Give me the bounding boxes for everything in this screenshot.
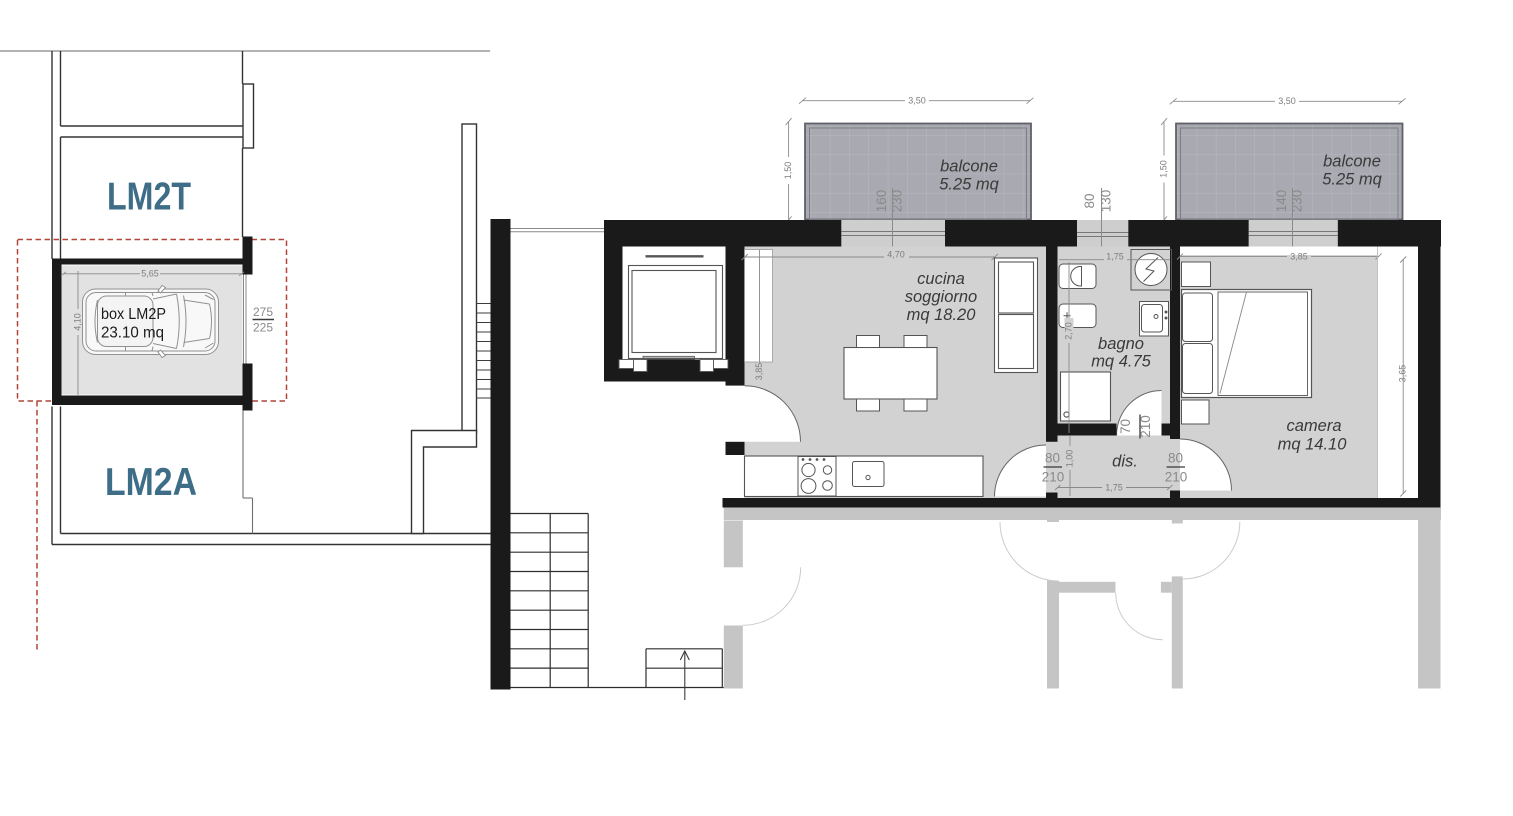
- svg-text:1,75: 1,75: [1105, 483, 1123, 493]
- svg-text:3,50: 3,50: [1278, 96, 1296, 106]
- svg-text:275: 275: [253, 305, 273, 319]
- svg-text:box LM2P: box LM2P: [101, 306, 166, 323]
- svg-text:5.25 mq: 5.25 mq: [1322, 171, 1382, 189]
- svg-text:dis.: dis.: [1112, 453, 1138, 471]
- svg-text:mq 18.20: mq 18.20: [907, 306, 977, 324]
- svg-text:balcone: balcone: [940, 158, 998, 176]
- svg-text:3,85: 3,85: [1290, 252, 1308, 262]
- svg-text:3,50: 3,50: [908, 96, 926, 106]
- svg-text:5,65: 5,65: [141, 269, 159, 279]
- svg-text:70: 70: [1118, 419, 1133, 434]
- svg-text:camera: camera: [1286, 417, 1341, 435]
- svg-text:2,70: 2,70: [1064, 322, 1074, 340]
- svg-text:3,85: 3,85: [754, 363, 764, 381]
- svg-text:80: 80: [1082, 193, 1097, 208]
- svg-text:160: 160: [874, 190, 889, 213]
- svg-text:225: 225: [253, 321, 273, 335]
- svg-text:bagno: bagno: [1098, 335, 1144, 353]
- svg-text:140: 140: [1274, 190, 1289, 213]
- svg-text:230: 230: [1290, 190, 1305, 213]
- svg-text:soggiorno: soggiorno: [905, 288, 977, 306]
- svg-text:mq 4.75: mq 4.75: [1091, 353, 1151, 371]
- svg-text:balcone: balcone: [1323, 153, 1381, 171]
- svg-text:3,65: 3,65: [1398, 365, 1408, 383]
- svg-text:4,70: 4,70: [887, 250, 905, 260]
- svg-text:5.25 mq: 5.25 mq: [939, 176, 999, 194]
- svg-text:80: 80: [1045, 451, 1060, 466]
- svg-text:130: 130: [1099, 190, 1114, 213]
- svg-text:4,10: 4,10: [73, 313, 83, 331]
- svg-text:cucina: cucina: [917, 270, 965, 288]
- svg-text:23.10 mq: 23.10 mq: [101, 325, 164, 342]
- svg-text:LM2T: LM2T: [107, 176, 191, 219]
- svg-text:1,75: 1,75: [1106, 252, 1124, 262]
- svg-text:210: 210: [1165, 470, 1188, 485]
- svg-text:1,50: 1,50: [783, 162, 793, 180]
- svg-text:LM2A: LM2A: [105, 461, 197, 504]
- svg-text:210: 210: [1042, 470, 1065, 485]
- svg-text:1,50: 1,50: [1158, 160, 1168, 178]
- svg-text:230: 230: [890, 190, 905, 213]
- svg-text:mq 14.10: mq 14.10: [1278, 436, 1348, 454]
- svg-text:80: 80: [1168, 451, 1183, 466]
- svg-text:1,00: 1,00: [1065, 450, 1075, 468]
- svg-text:210: 210: [1138, 415, 1153, 438]
